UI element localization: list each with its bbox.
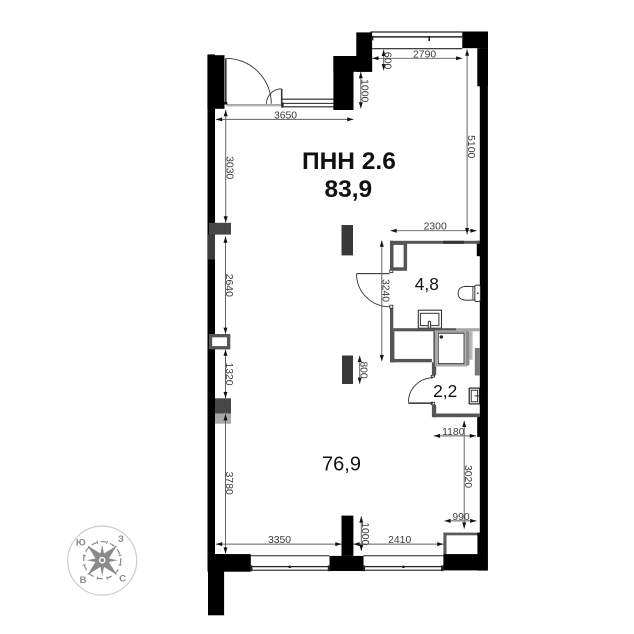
svg-text:ПНН 2.6: ПНН 2.6 — [302, 148, 396, 175]
svg-text:2640: 2640 — [223, 274, 234, 297]
svg-text:1000: 1000 — [359, 522, 370, 545]
svg-text:5100: 5100 — [465, 135, 476, 158]
svg-text:4,8: 4,8 — [415, 274, 439, 294]
svg-text:3650: 3650 — [274, 110, 297, 121]
svg-text:2,2: 2,2 — [433, 381, 457, 401]
svg-text:1000: 1000 — [359, 79, 370, 102]
svg-text:3780: 3780 — [223, 472, 234, 495]
svg-text:76,9: 76,9 — [322, 453, 361, 475]
svg-text:3030: 3030 — [223, 156, 234, 179]
svg-text:3240: 3240 — [380, 279, 391, 302]
svg-text:83,9: 83,9 — [324, 176, 372, 203]
svg-text:600: 600 — [381, 52, 392, 70]
svg-text:З: З — [118, 534, 124, 545]
svg-text:2410: 2410 — [388, 535, 411, 546]
svg-text:800: 800 — [357, 361, 368, 379]
svg-text:3350: 3350 — [268, 535, 291, 546]
svg-text:Ю: Ю — [76, 538, 86, 549]
svg-text:990: 990 — [452, 512, 470, 523]
svg-text:С: С — [119, 574, 126, 585]
svg-text:2300: 2300 — [424, 222, 447, 233]
svg-text:В: В — [80, 575, 87, 586]
svg-text:3020: 3020 — [462, 465, 473, 488]
svg-text:2790: 2790 — [413, 49, 436, 60]
svg-text:1320: 1320 — [223, 362, 234, 385]
svg-text:1180: 1180 — [442, 427, 465, 438]
